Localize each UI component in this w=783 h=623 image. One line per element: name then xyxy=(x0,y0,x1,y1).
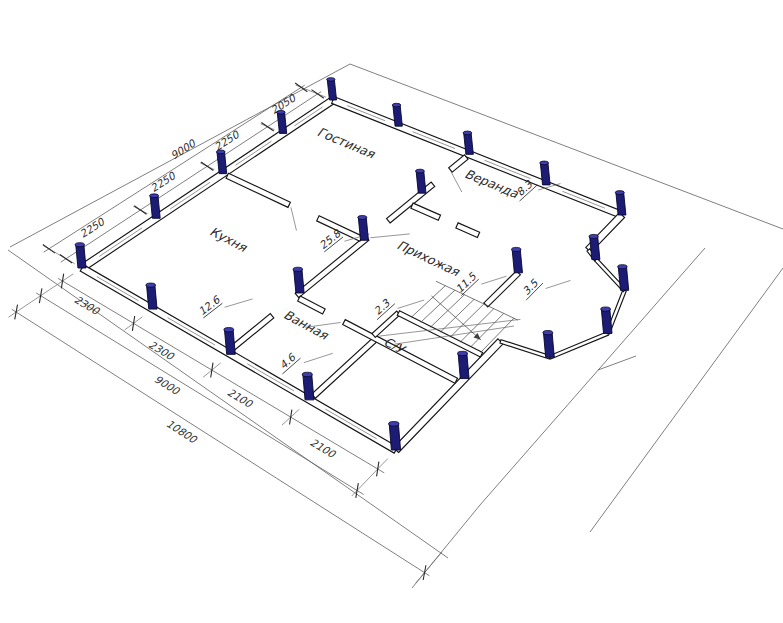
foundation-pile xyxy=(303,374,314,399)
wall xyxy=(549,332,608,359)
window-line xyxy=(168,318,216,346)
foundation-pile xyxy=(464,133,474,154)
dimension-label: 2300 xyxy=(72,293,102,318)
window-line xyxy=(99,228,142,257)
room-label: Кухня xyxy=(207,223,250,255)
foundation-pile-top xyxy=(150,194,159,198)
room-label: Ванная xyxy=(281,307,331,344)
foundation-pile-top xyxy=(543,330,553,334)
area-leader xyxy=(546,280,571,288)
foundation-pile-top xyxy=(392,103,400,107)
area-label: 3.5 xyxy=(517,274,543,300)
dim-tick xyxy=(61,274,63,289)
wall xyxy=(456,223,480,238)
foundation-pile-top xyxy=(416,169,425,173)
foundation-pile xyxy=(277,112,287,133)
foundation-pile xyxy=(217,152,227,174)
window-line xyxy=(97,277,139,301)
foundation-pile-top xyxy=(146,283,156,287)
foundation-pile-top xyxy=(75,243,84,247)
dimension-label: 2250 xyxy=(212,128,242,153)
stair-tread xyxy=(450,304,484,337)
foundation-pile-top xyxy=(302,372,312,376)
room-label: Прихожая xyxy=(395,237,463,280)
dimension-label: 2100 xyxy=(308,436,338,461)
dim-tick xyxy=(39,288,42,303)
area-label: 2.3 xyxy=(371,296,392,317)
site-boundary-line xyxy=(8,250,448,558)
dimension-label: 2100 xyxy=(225,386,255,411)
foundation-pile-top xyxy=(277,110,286,114)
dimension-label: 2300 xyxy=(147,338,177,363)
dim-tick xyxy=(132,316,134,331)
window-line xyxy=(412,132,455,149)
site-boundary-line xyxy=(480,248,705,505)
door-leaf xyxy=(291,207,297,230)
foundation-pile xyxy=(224,330,235,355)
dimension-label: 10800 xyxy=(164,417,200,446)
dimension-label: 2250 xyxy=(148,169,178,194)
window-line xyxy=(294,107,322,126)
room-label: Ванная xyxy=(281,307,331,344)
foundation-pile-top xyxy=(458,351,468,355)
dimension-label: 2250 xyxy=(77,215,107,240)
foundation-pile xyxy=(150,196,160,218)
window-line xyxy=(562,191,604,208)
dimension-label: 9000 xyxy=(168,136,198,161)
wall xyxy=(332,97,624,219)
wall xyxy=(312,338,377,398)
foundation-pile-top xyxy=(601,307,611,311)
room-label: Кухня xyxy=(207,223,250,255)
area-leader xyxy=(481,276,506,284)
foundation-pile xyxy=(590,236,600,259)
dim-tick xyxy=(377,462,379,477)
room-label: Гостиная xyxy=(315,124,378,162)
foundation-pile-top xyxy=(540,161,549,165)
wall xyxy=(298,296,326,314)
dimension-label: 9000 xyxy=(168,136,198,161)
area-label: 12.6 xyxy=(196,293,223,318)
wall xyxy=(449,155,468,172)
window-line xyxy=(325,409,376,439)
foundation-pile-top xyxy=(224,328,234,332)
site-boundary-line xyxy=(598,356,636,370)
room-label: Гостиная xyxy=(315,124,378,162)
dimension-label: 2100 xyxy=(225,386,255,411)
dimension-label: 2250 xyxy=(77,215,107,240)
dimension-label: 2300 xyxy=(72,293,102,318)
foundation-pile xyxy=(512,249,522,272)
foundation-pile-top xyxy=(293,267,302,271)
foundation-pile xyxy=(618,267,628,291)
dim-tick xyxy=(423,565,426,580)
foundation-pile xyxy=(616,193,626,215)
foundation-pile xyxy=(76,245,86,268)
wall xyxy=(411,203,441,220)
foundation-pile xyxy=(389,424,400,450)
foundation-pile xyxy=(393,105,402,126)
door-leaf xyxy=(451,172,462,192)
stair-tread xyxy=(411,286,445,318)
foundation-pile-top xyxy=(589,234,598,238)
wall xyxy=(387,182,435,223)
foundation-pile-top xyxy=(389,422,399,427)
dimension-label: 2250 xyxy=(148,169,178,194)
dim-tick xyxy=(290,410,292,425)
foundation-pile-top xyxy=(618,265,627,269)
area-label: 4.6 xyxy=(274,349,300,374)
foundation-pile xyxy=(458,354,469,379)
extension-line xyxy=(416,552,442,583)
foundation-pile xyxy=(147,285,158,309)
area-leader xyxy=(397,300,424,308)
window-line xyxy=(347,106,385,121)
area-label: 4.6 xyxy=(277,350,298,371)
dim-tick xyxy=(15,305,18,320)
floor-plan-canvas: КухняГостинаяВерандаПрихожаяВаннаяС/У12.… xyxy=(0,0,783,623)
dim-tick xyxy=(211,363,213,378)
foundation-pile-top xyxy=(216,150,225,154)
drawing-page: КухняГостинаяВерандаПрихожаяВаннаяС/У12.… xyxy=(0,0,783,623)
foundation-pile-top xyxy=(615,191,624,195)
wall xyxy=(500,340,551,359)
foundation-pile xyxy=(543,333,554,358)
foundation-pile-top xyxy=(512,247,521,251)
room-label: Прихожая xyxy=(395,237,463,280)
stair-tread xyxy=(421,290,455,322)
foundation-pile-top xyxy=(327,78,335,82)
area-leader xyxy=(304,353,333,362)
foundation-pile xyxy=(358,217,368,240)
area-leader xyxy=(225,299,253,307)
foundation-pile xyxy=(416,171,426,193)
wall xyxy=(231,314,274,351)
dimension-label: 2300 xyxy=(147,338,177,363)
dimension-label: 10800 xyxy=(164,417,200,446)
dimension-label: 9000 xyxy=(153,372,183,397)
foundation-pile-top xyxy=(358,215,367,219)
wall xyxy=(484,271,520,307)
dimension-label: 2100 xyxy=(308,436,338,461)
dim-tick xyxy=(356,483,359,498)
wall xyxy=(372,311,400,337)
foundation-pile xyxy=(601,309,612,333)
foundation-pile-top xyxy=(463,131,472,135)
area-label: 3.5 xyxy=(520,276,541,297)
wall xyxy=(295,236,369,298)
wall xyxy=(226,173,290,207)
dimension-label: 9000 xyxy=(153,372,183,397)
dimension-label: 2250 xyxy=(212,128,242,153)
door-leaf xyxy=(370,234,410,238)
foundation-pile xyxy=(540,163,550,185)
foundation-pile xyxy=(294,269,304,293)
window-line xyxy=(235,141,271,165)
foundation-pile xyxy=(327,79,336,100)
